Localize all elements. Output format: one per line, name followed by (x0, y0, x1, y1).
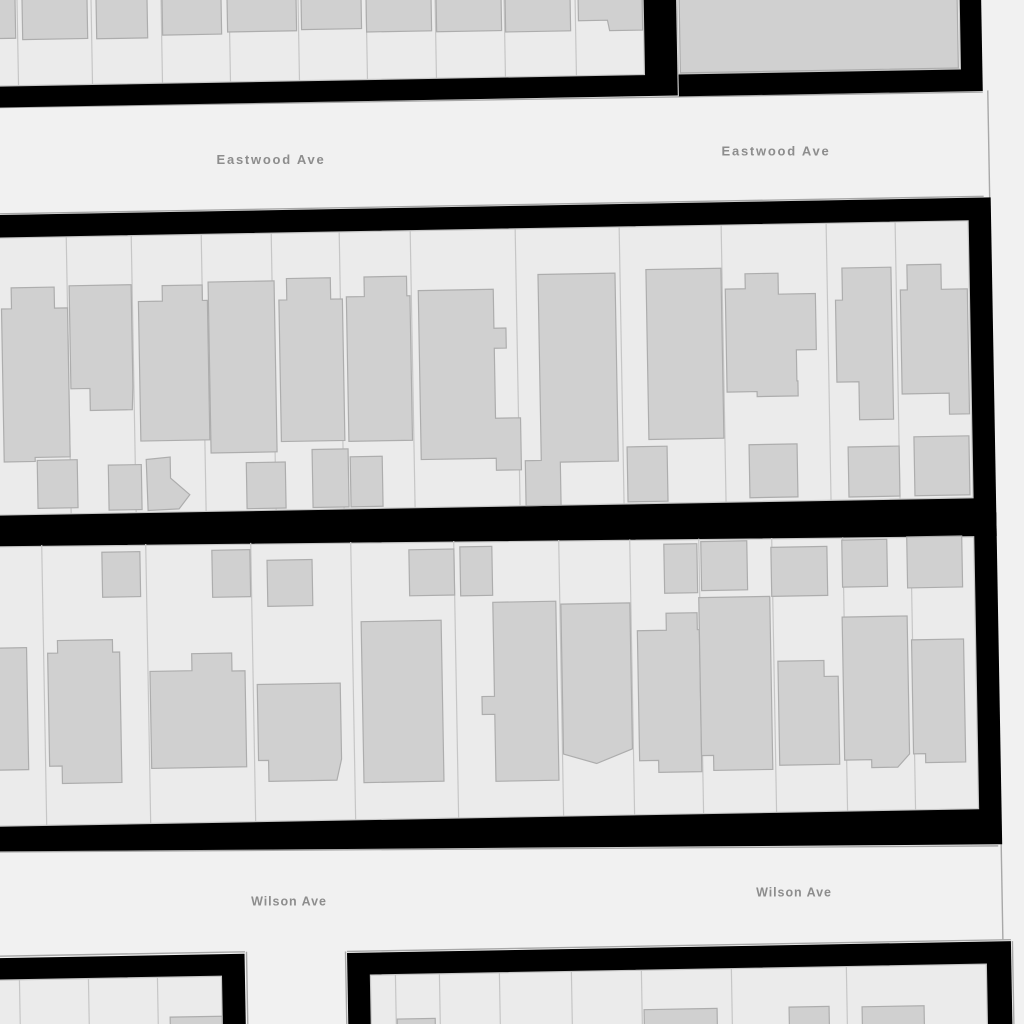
svg-text:Eastwood Ave: Eastwood Ave (217, 152, 326, 167)
svg-text:Wilson Ave: Wilson Ave (251, 895, 327, 909)
svg-text:Wilson Ave: Wilson Ave (756, 886, 832, 900)
svg-text:Eastwood Ave: Eastwood Ave (722, 144, 831, 159)
